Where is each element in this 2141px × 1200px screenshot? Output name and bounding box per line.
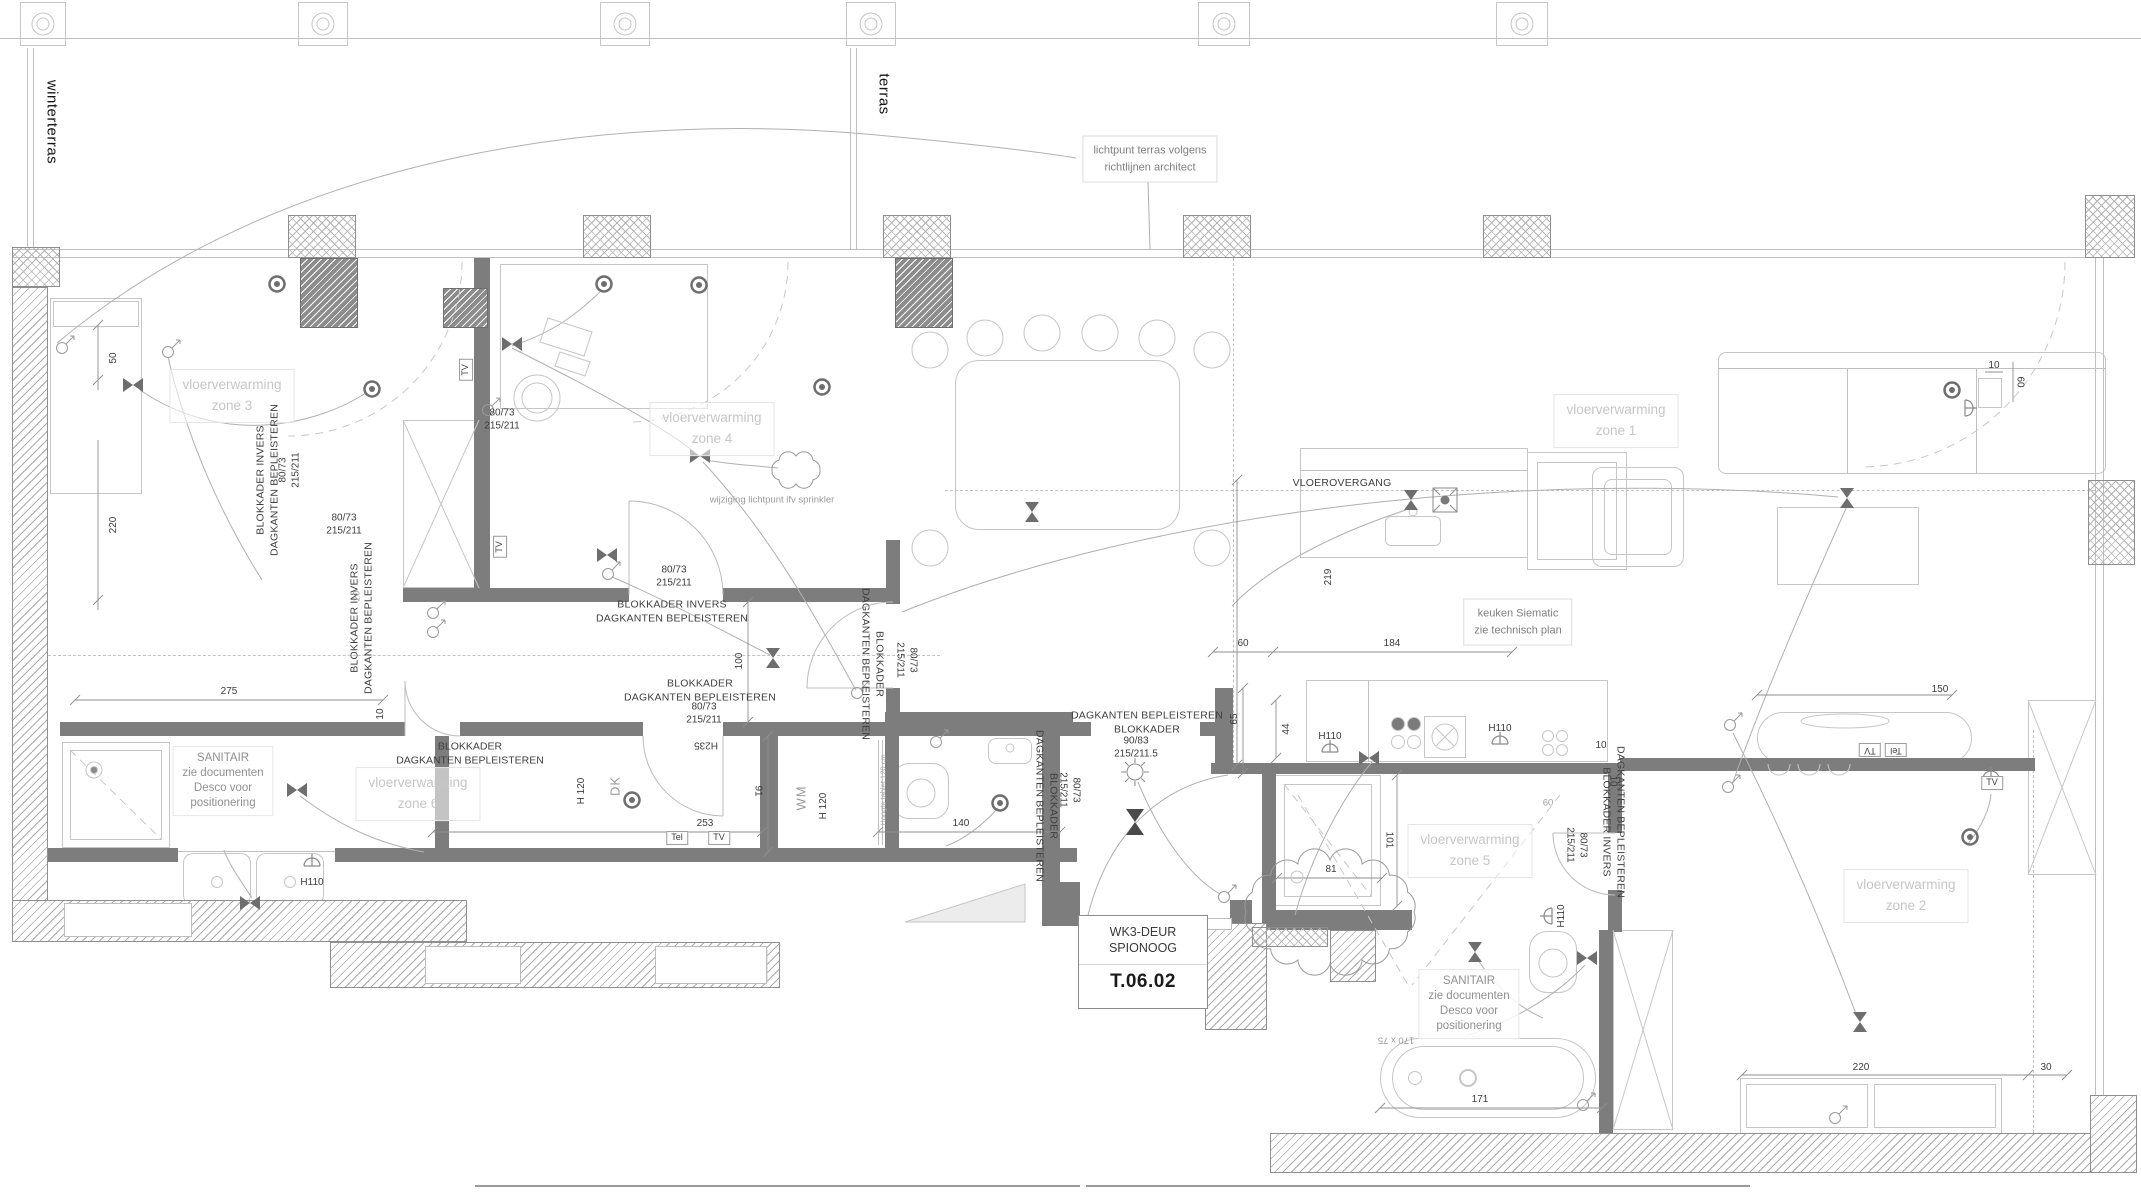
dim-10: 10 [1988,360,1999,373]
zone-label-2: vloerverwarming zone 2 [1843,869,1968,923]
divider [1079,964,1207,965]
junction-light-icon [1121,758,1149,786]
light-point-icon [1853,1012,1867,1032]
plan-linework [0,0,2141,1200]
label-vloerovergang: VLOEROVERGANG [1293,477,1392,491]
dim-253: 253 [697,818,714,831]
dim-91: 91 [751,785,764,796]
note-blokkader: BLOKKADER DAGKANTEN BEPLEISTEREN [396,740,544,767]
dim-140: 140 [953,818,970,831]
ceiling-spot-icon [993,796,1008,811]
dim-44: 44 [1281,723,1294,734]
note-blokkader-v: BLOKKADER DAGKANTEN BEPLEISTEREN [858,588,885,740]
note-wijziging: wijziging lichtpunt ifv sprinkler [710,495,835,506]
switch-icon [428,601,446,619]
light-point-icon [766,648,780,668]
zone-label-6: vloerverwarming zone 6 [355,767,480,821]
note-blokkader-v: DAGKANTEN BEPLEISTEREN BLOKKADER INVERS [1599,746,1626,898]
bench [655,946,767,984]
door-spec: 80/73 215/211 [484,408,519,433]
entry-door-type: WK3-DEUR [1110,925,1177,939]
light-point-icon [502,337,522,351]
label-h110: H110 [1488,723,1511,736]
bench [425,946,521,984]
label-terras: terras [876,73,893,114]
zone-label-4: vloerverwarming zone 4 [649,402,774,456]
ceiling-spot-icon [692,278,707,293]
light-point-icon [1025,502,1039,522]
light-point-icon [1404,490,1418,510]
ceiling-spot-icon [625,793,640,808]
switch-icon [1725,713,1743,731]
door-spec: 80/73 215/211 [1564,827,1589,862]
dim-220: 220 [1853,1062,1870,1075]
entry-door-spy: SPIONOOG [1109,941,1177,955]
dim-60b: 60 [2013,376,2026,387]
label-h120: H 120 [818,793,831,820]
switch-icon [603,562,621,580]
tag-tv: TV [459,359,473,381]
ceiling-spot-icon [597,277,612,292]
note-blokkader-invers: BLOKKADER INVERS DAGKANTEN BEPLEISTEREN [596,598,748,625]
light-point-icon [240,896,260,910]
door-spec-entry: 90/83 215/211.5 [1114,736,1158,761]
dim-220b: 220 [108,517,121,534]
ceiling-spot-icon [365,382,380,397]
tag-tel: Tel [1885,743,1907,757]
light-point-icon [1577,951,1597,965]
door-spec: 80/73 215/211 [1057,772,1082,807]
dim-10: 10 [375,708,388,719]
door-spec: 80/73 215/211 [686,702,721,727]
ceiling-spot-icon [270,277,285,292]
light-point-icon [123,378,143,392]
dim-101: 101 [1382,832,1395,849]
label-h120: H 120 [576,778,589,805]
fixture-lines [32,13,2096,1130]
tag-tv: TV [708,831,730,845]
door-spec: 80/73 215/211 [894,642,919,677]
socket-icon [1540,908,1552,924]
note-keuken: keuken Siematic zie technisch plan [1463,599,1572,646]
zone-label-1: vloerverwarming zone 1 [1553,394,1678,448]
zone-label-5: vloerverwarming zone 5 [1407,824,1532,878]
door-spec: 80/73 215/211 [278,452,303,487]
label-hoogte-tablet: Hoogte tablet 120 cm [879,754,888,825]
dim-81: 81 [1325,864,1336,877]
ceiling-spot-icon [815,380,830,395]
note-sanitair-left: SANITAIR zie documenten Desco voor posit… [172,746,273,816]
dim-219: 219 [1323,569,1336,586]
label-h110: H110 [1556,904,1569,927]
light-point-icon [597,548,617,562]
label-h110: H110 [300,877,323,890]
dim-60: 60 [1237,638,1248,651]
dim-60c: 60 [1543,798,1554,809]
light-point-icon [1840,488,1854,508]
switch-icon [163,340,181,358]
dim-65: 65 [1229,713,1242,724]
dim-30: 30 [2040,1062,2051,1075]
label-winterterras: winterterras [44,80,61,164]
label-h110: H110 [1318,731,1341,744]
tag-tv: TV [493,536,507,558]
note-lichtpunt-terras: lichtpunt terras volgens richtlijnen arc… [1082,136,1217,183]
dim-20: 20 [352,591,363,602]
switch-icon [1219,885,1237,903]
dim-184: 184 [1384,638,1401,651]
label-wm: WM [794,785,809,810]
door-spec: 80/73 215/211 [326,513,361,538]
dim-10: 10 [1595,740,1606,753]
dim-10: 10 [1606,775,1619,786]
dim-50: 50 [108,352,121,363]
window-niche [64,903,192,937]
dim-100: 100 [734,653,747,670]
apartment-code: T.06.02 [1079,971,1207,993]
tag-tel: Tel [666,831,688,845]
switch-icon [57,336,75,354]
light-point-icon [1359,751,1379,765]
socket-icon [1965,400,1977,416]
dim-150: 150 [1932,684,1949,697]
ceiling-spot-icon [1945,383,1960,398]
note-entry-door: DAGKANTEN BEPLEISTEREN BLOKKADER [1071,709,1223,736]
tag-tv: TV [1981,776,2003,790]
switch-icon [931,730,949,748]
dim-275: 275 [221,686,238,699]
floor-plan: winterterrasterraslichtpunt terras volge… [0,0,2141,1200]
dim-171: 171 [1472,1094,1489,1107]
switch-icon [1830,1106,1848,1124]
ceiling-spot-icon [1963,830,1978,845]
label-dk: DK [608,776,623,796]
socket-icon [304,854,320,866]
tag-tv: TV [1859,743,1881,757]
note-sanitair-right: SANITAIR zie documenten Desco voor posit… [1418,969,1519,1039]
entry-door-tag: WK3-DEUR SPIONOOG T.06.02 [1078,915,1208,1009]
door-spec: 80/73 215/211 [656,565,691,590]
light-point-icon [287,783,307,797]
label-bath-size: 170 x 75 [1378,1035,1414,1046]
recessed-spot-icon [1433,488,1457,512]
switch-icon [428,620,446,638]
switch-icon [1723,775,1741,793]
light-point-icon [1468,942,1482,962]
note-blokkader-v: BLOKKADER INVERS DAGKANTEN BEPLEISTEREN [348,542,375,694]
label-h235: H235 [694,738,718,751]
